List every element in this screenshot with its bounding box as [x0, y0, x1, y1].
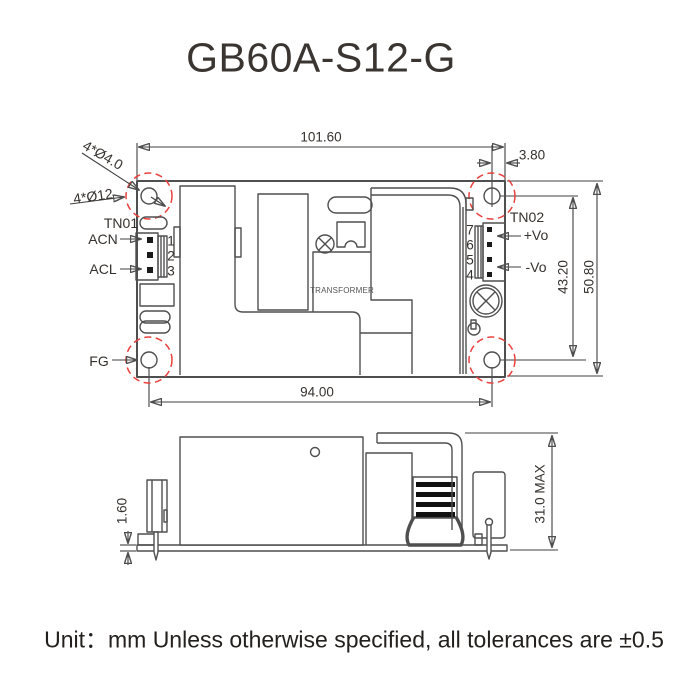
dim-max-height: 31.0 MAX	[533, 464, 547, 523]
heatsink-outline	[174, 186, 412, 375]
dim-overall-width: 101.60	[300, 130, 341, 144]
hole-keepout-circle	[126, 173, 172, 219]
side-heatsink	[180, 437, 412, 545]
top-view	[70, 143, 603, 407]
tn02-pin-7: 7	[466, 223, 474, 237]
vo-minus-label: -Vo	[525, 260, 546, 274]
side-transformer	[407, 477, 463, 545]
connector-pin	[487, 525, 491, 559]
transformer-outline	[313, 252, 371, 312]
tn02-connector	[475, 223, 505, 281]
center-components	[316, 197, 372, 253]
tn02-label: TN02	[510, 210, 544, 224]
tn02-pin-4: 4	[466, 268, 474, 282]
pcb-outline	[137, 181, 505, 377]
tn02-pin-6: 6	[466, 238, 474, 252]
side-view	[120, 433, 558, 565]
tn01-label: TN01	[104, 216, 138, 230]
fg-label: FG	[89, 354, 108, 368]
tn02-pin-5: 5	[466, 253, 474, 267]
transformer-label: TRANSFORMER	[310, 287, 374, 295]
capacitor-outline	[371, 188, 473, 374]
dim-hole-to-edge: 3.80	[519, 148, 545, 162]
vo-plus-label: +Vo	[524, 228, 549, 242]
drawing-title: GB60A-S12-G	[186, 38, 456, 79]
mechanical-drawing-page: GB60A-S12-G 101.60 3.80 43.20 50.80 94.0…	[0, 0, 700, 700]
acn-label: ACN	[88, 232, 118, 246]
dim-overall-depth: 50.80	[582, 260, 596, 294]
dim-hole-pitch-vertical: 43.20	[556, 260, 570, 294]
screw-head	[471, 320, 476, 329]
trimmer-pot	[468, 285, 502, 335]
tn01-pin-1: 1	[167, 234, 175, 248]
dim-pcb-thickness: 1.60	[115, 498, 129, 524]
tn01-pin-2: 2	[167, 249, 175, 263]
tn01-pin-3: 3	[167, 264, 175, 278]
dim-hole-pitch-horizontal: 94.00	[300, 385, 334, 399]
footer-note: Unit：mm Unless otherwise specified, all …	[44, 629, 664, 652]
dimension-lines	[137, 143, 603, 407]
drawing-linework	[0, 0, 700, 700]
connector-pin	[154, 532, 158, 560]
mounting-holes	[126, 173, 515, 383]
acl-label: ACL	[89, 262, 116, 276]
